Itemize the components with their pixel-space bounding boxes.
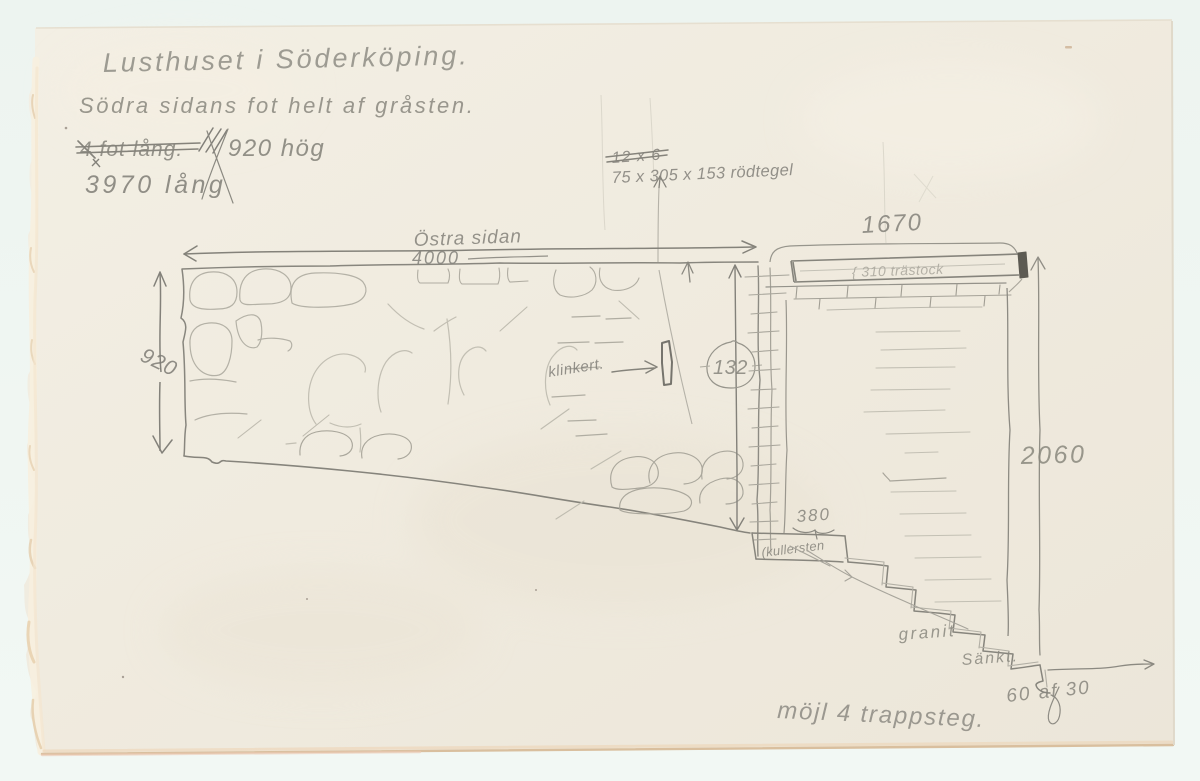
svg-text:3970 lång: 3970 lång	[85, 171, 226, 199]
svg-text:{ 310 trästock: { 310 trästock	[852, 261, 945, 280]
svg-text:Södra sidans fot helt af gråst: Södra sidans fot helt af gråsten.	[79, 93, 475, 118]
svg-text:granit: granit	[898, 621, 957, 644]
svg-text:1670: 1670	[861, 209, 924, 239]
svg-text:2060: 2060	[1019, 440, 1086, 470]
svg-text:132: 132	[713, 357, 748, 379]
svg-text:920 hög: 920 hög	[228, 135, 325, 162]
svg-text:380: 380	[796, 505, 832, 526]
